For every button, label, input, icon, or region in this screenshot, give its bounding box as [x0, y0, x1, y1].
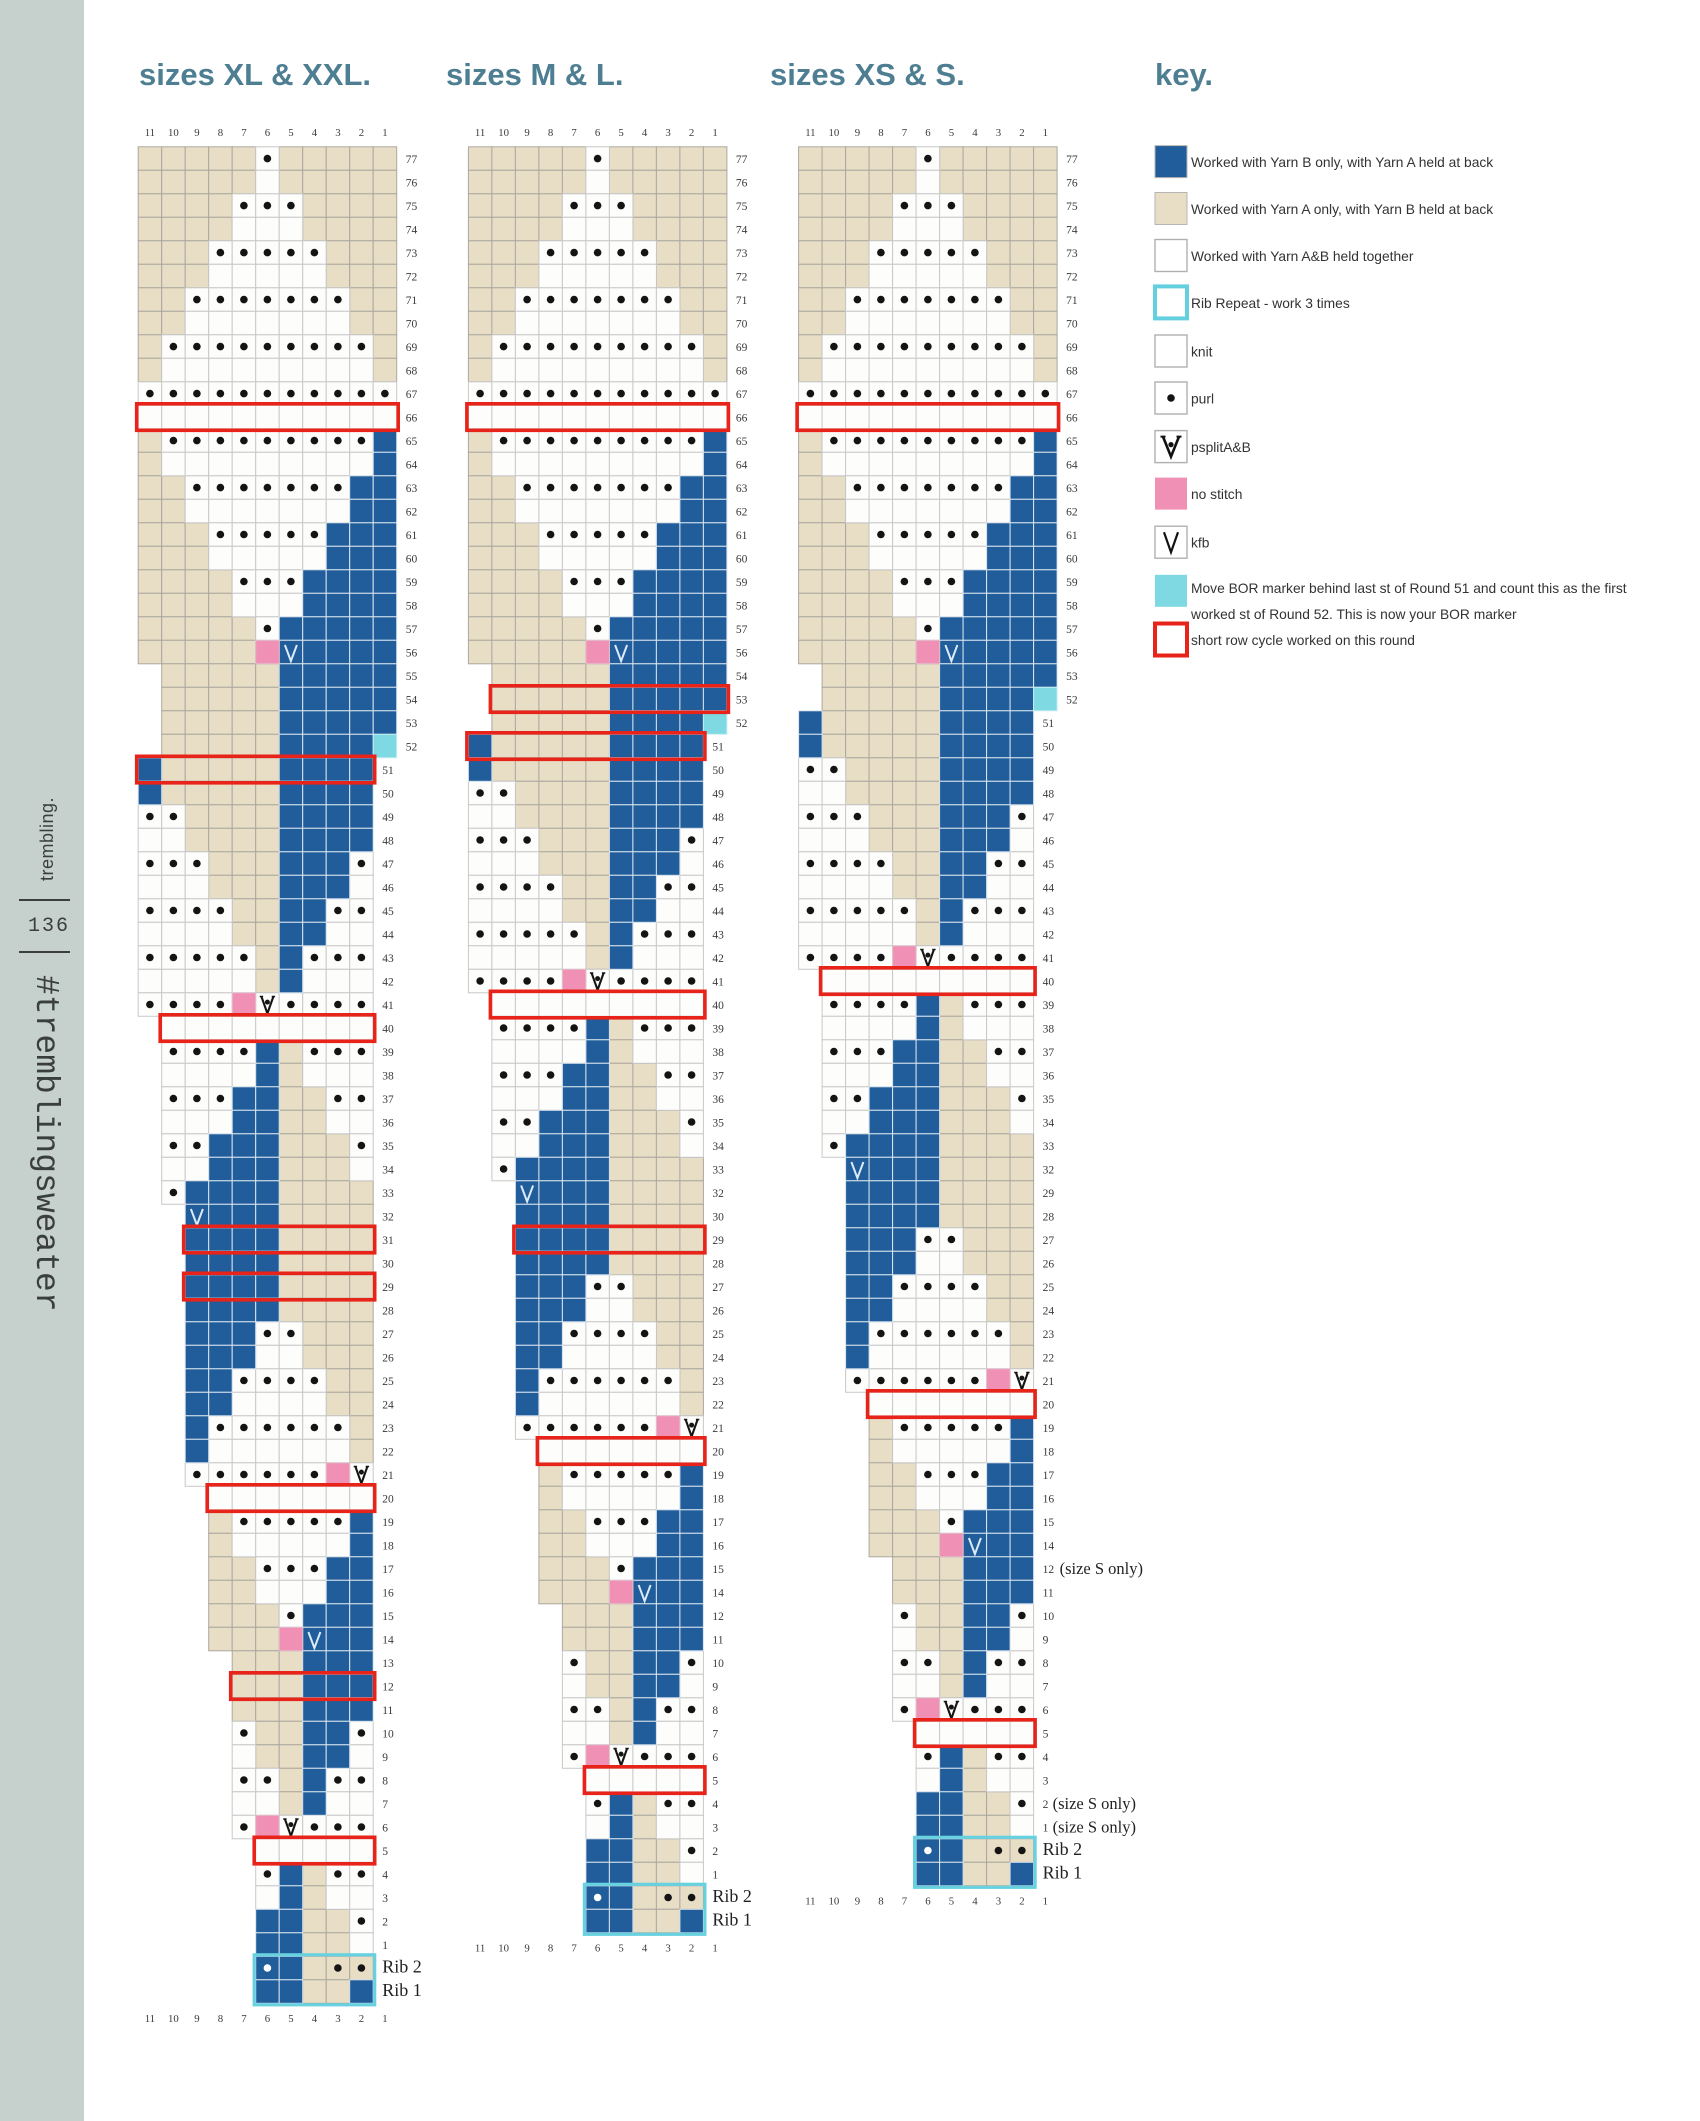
svg-text:44: 44 [1043, 883, 1055, 895]
svg-text:38: 38 [382, 1071, 394, 1083]
svg-text:44: 44 [712, 906, 724, 918]
svg-text:8: 8 [382, 1776, 388, 1788]
svg-text:66: 66 [406, 413, 418, 425]
svg-text:56: 56 [1066, 648, 1078, 660]
svg-text:29: 29 [1043, 1188, 1055, 1200]
svg-text:73: 73 [1066, 248, 1078, 260]
svg-text:58: 58 [406, 601, 418, 613]
svg-text:65: 65 [1066, 436, 1078, 448]
svg-text:11: 11 [712, 1635, 723, 1647]
svg-text:8: 8 [712, 1705, 718, 1717]
svg-text:67: 67 [406, 389, 418, 401]
svg-text:46: 46 [712, 859, 724, 871]
svg-text:27: 27 [382, 1329, 394, 1341]
svg-text:48: 48 [712, 812, 724, 824]
svg-text:63: 63 [406, 483, 418, 495]
svg-text:2: 2 [689, 1942, 694, 1954]
svg-text:18: 18 [1043, 1447, 1055, 1459]
svg-text:3: 3 [1043, 1776, 1049, 1788]
svg-text:7: 7 [241, 2013, 247, 2025]
svg-text:67: 67 [1066, 389, 1078, 401]
svg-text:7: 7 [382, 1799, 388, 1811]
svg-text:Move BOR marker behind last st: Move BOR marker behind last st of Round … [1191, 581, 1627, 596]
svg-text:11: 11 [805, 127, 815, 139]
svg-text:74: 74 [406, 225, 418, 237]
svg-text:6: 6 [712, 1752, 718, 1764]
svg-text:7: 7 [241, 127, 247, 139]
svg-text:31: 31 [382, 1235, 394, 1247]
svg-text:47: 47 [382, 859, 394, 871]
svg-text:51: 51 [1043, 718, 1055, 730]
svg-text:19: 19 [1043, 1423, 1055, 1435]
svg-text:2: 2 [359, 2013, 364, 2025]
svg-text:40: 40 [1043, 977, 1055, 989]
svg-text:7: 7 [902, 1895, 908, 1907]
svg-text:7: 7 [902, 127, 908, 139]
svg-text:37: 37 [712, 1071, 724, 1083]
svg-text:Rib 1: Rib 1 [712, 1910, 752, 1930]
svg-text:62: 62 [736, 507, 748, 519]
svg-text:34: 34 [1043, 1118, 1055, 1130]
svg-text:15: 15 [1043, 1517, 1055, 1529]
svg-text:48: 48 [382, 836, 394, 848]
svg-text:26: 26 [712, 1306, 724, 1318]
svg-text:1: 1 [712, 1942, 717, 1954]
svg-text:4: 4 [1043, 1752, 1049, 1764]
svg-text:5: 5 [288, 127, 293, 139]
svg-text:39: 39 [712, 1024, 724, 1036]
svg-text:64: 64 [1066, 460, 1078, 472]
svg-text:36: 36 [382, 1118, 394, 1130]
svg-text:11: 11 [145, 127, 155, 139]
svg-text:44: 44 [382, 930, 394, 942]
svg-text:59: 59 [406, 577, 418, 589]
svg-text:9: 9 [712, 1682, 718, 1694]
svg-text:76: 76 [406, 178, 418, 190]
svg-text:24: 24 [712, 1353, 724, 1365]
svg-text:74: 74 [736, 225, 748, 237]
svg-text:4: 4 [382, 1870, 388, 1882]
svg-text:35: 35 [1043, 1094, 1055, 1106]
svg-text:18: 18 [382, 1541, 394, 1553]
svg-text:24: 24 [1043, 1306, 1055, 1318]
svg-text:9: 9 [1043, 1635, 1049, 1647]
svg-text:68: 68 [406, 366, 418, 378]
svg-text:15: 15 [712, 1564, 724, 1576]
svg-text:73: 73 [406, 248, 418, 260]
svg-text:10: 10 [168, 127, 179, 139]
svg-text:kfb: kfb [1191, 536, 1210, 551]
svg-text:72: 72 [1066, 272, 1078, 284]
svg-text:26: 26 [382, 1353, 394, 1365]
svg-text:21: 21 [382, 1470, 394, 1482]
svg-text:64: 64 [406, 460, 418, 472]
svg-text:76: 76 [1066, 178, 1078, 190]
svg-text:5: 5 [712, 1776, 718, 1788]
svg-text:(size S only): (size S only) [1060, 1559, 1143, 1578]
svg-text:48: 48 [1043, 789, 1055, 801]
svg-text:50: 50 [382, 789, 394, 801]
svg-text:4: 4 [712, 1799, 718, 1811]
svg-text:purl: purl [1191, 392, 1214, 407]
svg-text:43: 43 [712, 930, 724, 942]
svg-text:5: 5 [618, 127, 623, 139]
svg-text:6: 6 [925, 127, 931, 139]
svg-text:5: 5 [618, 1942, 623, 1954]
svg-text:38: 38 [712, 1047, 724, 1059]
svg-text:39: 39 [1043, 1000, 1055, 1012]
svg-text:60: 60 [406, 554, 418, 566]
svg-text:19: 19 [712, 1470, 724, 1482]
svg-text:9: 9 [855, 127, 860, 139]
svg-text:8: 8 [218, 2013, 223, 2025]
svg-text:71: 71 [736, 295, 748, 307]
svg-text:10: 10 [498, 127, 509, 139]
svg-text:11: 11 [475, 127, 485, 139]
svg-text:60: 60 [1066, 554, 1078, 566]
svg-text:4: 4 [642, 1942, 648, 1954]
svg-text:69: 69 [1066, 342, 1078, 354]
svg-text:30: 30 [712, 1212, 724, 1224]
svg-text:17: 17 [382, 1564, 394, 1576]
svg-text:10: 10 [712, 1658, 724, 1670]
svg-text:21: 21 [712, 1423, 724, 1435]
svg-text:Rib 1: Rib 1 [382, 1980, 422, 2000]
svg-text:20: 20 [712, 1447, 724, 1459]
svg-text:58: 58 [1066, 601, 1078, 613]
svg-text:14: 14 [1043, 1541, 1055, 1553]
svg-text:32: 32 [1043, 1165, 1055, 1177]
svg-text:59: 59 [1066, 577, 1078, 589]
svg-text:46: 46 [382, 883, 394, 895]
svg-text:1: 1 [1043, 1895, 1048, 1907]
svg-text:11: 11 [1043, 1588, 1054, 1600]
svg-text:54: 54 [406, 695, 418, 707]
svg-text:72: 72 [406, 272, 418, 284]
svg-text:10: 10 [1043, 1611, 1055, 1623]
svg-text:2: 2 [1043, 1799, 1049, 1811]
svg-text:3: 3 [382, 1893, 388, 1905]
svg-text:37: 37 [382, 1094, 394, 1106]
svg-text:17: 17 [712, 1517, 724, 1529]
svg-text:51: 51 [712, 742, 724, 754]
svg-text:41: 41 [712, 977, 724, 989]
svg-text:5: 5 [949, 127, 954, 139]
svg-text:25: 25 [712, 1329, 724, 1341]
svg-text:2: 2 [1019, 1895, 1024, 1907]
svg-text:33: 33 [382, 1188, 394, 1200]
svg-text:16: 16 [712, 1541, 724, 1553]
svg-text:6: 6 [265, 2013, 271, 2025]
svg-text:68: 68 [736, 366, 748, 378]
svg-text:8: 8 [878, 1895, 883, 1907]
svg-text:3: 3 [665, 127, 670, 139]
svg-text:37: 37 [1043, 1047, 1055, 1059]
svg-text:33: 33 [1043, 1141, 1055, 1153]
svg-text:8: 8 [548, 127, 553, 139]
svg-text:69: 69 [736, 342, 748, 354]
svg-text:7: 7 [571, 1942, 577, 1954]
svg-text:Worked with Yarn A only, with: Worked with Yarn A only, with Yarn B hel… [1191, 202, 1493, 217]
svg-text:45: 45 [1043, 859, 1055, 871]
svg-text:3: 3 [335, 2013, 340, 2025]
svg-text:27: 27 [712, 1282, 724, 1294]
svg-text:3: 3 [996, 127, 1001, 139]
svg-text:5: 5 [1043, 1729, 1049, 1741]
svg-text:77: 77 [736, 154, 748, 166]
svg-text:71: 71 [1066, 295, 1078, 307]
svg-text:69: 69 [406, 342, 418, 354]
svg-text:52: 52 [1066, 695, 1078, 707]
svg-text:67: 67 [736, 389, 748, 401]
svg-text:8: 8 [548, 1942, 553, 1954]
svg-text:worked st of Round 52. This is: worked st of Round 52. This is now your … [1190, 607, 1517, 622]
svg-text:66: 66 [1066, 413, 1078, 425]
svg-text:50: 50 [1043, 742, 1055, 754]
svg-text:11: 11 [145, 2013, 155, 2025]
svg-text:7: 7 [1043, 1682, 1049, 1694]
svg-text:20: 20 [1043, 1400, 1055, 1412]
svg-text:36: 36 [1043, 1071, 1055, 1083]
svg-text:41: 41 [1043, 953, 1055, 965]
svg-text:70: 70 [1066, 319, 1078, 331]
svg-text:15: 15 [382, 1611, 394, 1623]
svg-text:10: 10 [829, 1895, 840, 1907]
svg-text:50: 50 [712, 765, 724, 777]
svg-text:66: 66 [736, 413, 748, 425]
svg-text:60: 60 [736, 554, 748, 566]
svg-text:75: 75 [406, 201, 418, 213]
svg-text:70: 70 [736, 319, 748, 331]
svg-text:57: 57 [1066, 624, 1078, 636]
svg-text:Rib 2: Rib 2 [1043, 1839, 1083, 1859]
svg-text:3: 3 [996, 1895, 1001, 1907]
svg-text:45: 45 [382, 906, 394, 918]
svg-text:psplitA&B: psplitA&B [1191, 440, 1251, 455]
svg-text:20: 20 [382, 1494, 394, 1506]
svg-text:51: 51 [382, 765, 394, 777]
svg-text:Rib 2: Rib 2 [712, 1886, 752, 1906]
svg-text:1: 1 [382, 127, 387, 139]
svg-text:36: 36 [712, 1094, 724, 1106]
svg-text:52: 52 [406, 742, 418, 754]
svg-text:25: 25 [382, 1376, 394, 1388]
svg-text:49: 49 [712, 789, 724, 801]
svg-text:75: 75 [736, 201, 748, 213]
svg-text:26: 26 [1043, 1259, 1055, 1271]
svg-text:49: 49 [1043, 765, 1055, 777]
svg-text:6: 6 [265, 127, 271, 139]
svg-text:74: 74 [1066, 225, 1078, 237]
svg-text:9: 9 [855, 1895, 860, 1907]
svg-text:6: 6 [1043, 1705, 1049, 1717]
svg-text:2: 2 [359, 127, 364, 139]
svg-text:16: 16 [382, 1588, 394, 1600]
svg-text:28: 28 [382, 1306, 394, 1318]
svg-text:41: 41 [382, 1000, 394, 1012]
svg-text:21: 21 [1043, 1376, 1055, 1388]
svg-text:3: 3 [665, 1942, 670, 1954]
svg-text:23: 23 [382, 1423, 394, 1435]
svg-text:42: 42 [1043, 930, 1055, 942]
svg-text:10: 10 [498, 1942, 509, 1954]
svg-text:2: 2 [712, 1846, 718, 1858]
svg-text:73: 73 [736, 248, 748, 260]
svg-text:23: 23 [712, 1376, 724, 1388]
svg-text:3: 3 [712, 1823, 718, 1835]
svg-text:29: 29 [712, 1235, 724, 1247]
svg-text:Rib 2: Rib 2 [382, 1957, 422, 1977]
svg-text:4: 4 [312, 127, 318, 139]
svg-text:6: 6 [925, 1895, 931, 1907]
svg-text:42: 42 [712, 953, 724, 965]
svg-text:62: 62 [406, 507, 418, 519]
svg-text:8: 8 [1043, 1658, 1049, 1670]
svg-text:35: 35 [712, 1118, 724, 1130]
svg-text:61: 61 [1066, 530, 1078, 542]
svg-text:9: 9 [524, 127, 529, 139]
svg-text:1: 1 [1043, 1823, 1049, 1835]
svg-text:35: 35 [382, 1141, 394, 1153]
svg-text:75: 75 [1066, 201, 1078, 213]
svg-text:(size S only): (size S only) [1053, 1818, 1136, 1837]
svg-text:61: 61 [736, 530, 748, 542]
svg-text:11: 11 [475, 1942, 485, 1954]
svg-text:11: 11 [805, 1895, 815, 1907]
svg-text:29: 29 [382, 1282, 394, 1294]
svg-text:5: 5 [288, 2013, 293, 2025]
svg-text:11: 11 [382, 1705, 393, 1717]
svg-text:2: 2 [1019, 127, 1024, 139]
svg-text:76: 76 [736, 178, 748, 190]
svg-text:45: 45 [712, 883, 724, 895]
svg-text:47: 47 [712, 836, 724, 848]
svg-text:57: 57 [406, 624, 418, 636]
svg-text:65: 65 [736, 436, 748, 448]
svg-text:24: 24 [382, 1400, 394, 1412]
svg-text:22: 22 [1043, 1353, 1055, 1365]
svg-text:52: 52 [736, 718, 748, 730]
svg-text:55: 55 [406, 671, 418, 683]
svg-text:43: 43 [1043, 906, 1055, 918]
svg-text:12: 12 [382, 1682, 394, 1694]
svg-text:19: 19 [382, 1517, 394, 1529]
svg-text:22: 22 [712, 1400, 724, 1412]
svg-text:9: 9 [194, 2013, 199, 2025]
svg-text:1: 1 [712, 1870, 718, 1882]
svg-text:Worked with Yarn B only, with: Worked with Yarn B only, with Yarn A hel… [1191, 155, 1493, 170]
svg-text:13: 13 [382, 1658, 394, 1670]
svg-text:53: 53 [406, 718, 418, 730]
svg-text:9: 9 [382, 1752, 388, 1764]
svg-text:57: 57 [736, 624, 748, 636]
svg-text:23: 23 [1043, 1329, 1055, 1341]
svg-text:59: 59 [736, 577, 748, 589]
svg-text:2: 2 [689, 127, 694, 139]
svg-text:34: 34 [712, 1141, 724, 1153]
svg-text:5: 5 [949, 1895, 954, 1907]
svg-text:6: 6 [595, 127, 601, 139]
svg-text:32: 32 [382, 1212, 394, 1224]
svg-text:46: 46 [1043, 836, 1055, 848]
svg-text:14: 14 [382, 1635, 394, 1647]
svg-text:12: 12 [712, 1611, 724, 1623]
svg-text:4: 4 [972, 1895, 978, 1907]
svg-text:22: 22 [382, 1447, 394, 1459]
svg-text:70: 70 [406, 319, 418, 331]
svg-text:knit: knit [1191, 345, 1213, 360]
svg-text:12: 12 [1043, 1564, 1055, 1576]
svg-text:32: 32 [712, 1188, 724, 1200]
svg-text:2: 2 [382, 1917, 388, 1929]
svg-text:49: 49 [382, 812, 394, 824]
svg-text:(size S only): (size S only) [1053, 1794, 1136, 1813]
svg-text:3: 3 [335, 127, 340, 139]
svg-text:8: 8 [218, 127, 223, 139]
svg-text:1: 1 [1043, 127, 1048, 139]
svg-text:4: 4 [642, 127, 648, 139]
svg-text:77: 77 [406, 154, 418, 166]
svg-text:30: 30 [382, 1259, 394, 1271]
svg-text:28: 28 [712, 1259, 724, 1271]
svg-text:7: 7 [571, 127, 577, 139]
svg-text:short row cycle worked on this: short row cycle worked on this round [1191, 633, 1415, 648]
svg-text:38: 38 [1043, 1024, 1055, 1036]
svg-text:10: 10 [382, 1729, 394, 1741]
svg-text:39: 39 [382, 1047, 394, 1059]
svg-text:33: 33 [712, 1165, 724, 1177]
svg-text:17: 17 [1043, 1470, 1055, 1482]
svg-text:6: 6 [382, 1823, 388, 1835]
svg-text:40: 40 [712, 1000, 724, 1012]
svg-text:53: 53 [736, 695, 748, 707]
svg-text:5: 5 [382, 1846, 388, 1858]
svg-text:14: 14 [712, 1588, 724, 1600]
svg-text:56: 56 [406, 648, 418, 660]
svg-text:65: 65 [406, 436, 418, 448]
svg-text:72: 72 [736, 272, 748, 284]
svg-text:Worked with Yarn A&B held toge: Worked with Yarn A&B held together [1191, 249, 1414, 264]
svg-text:6: 6 [595, 1942, 601, 1954]
svg-text:4: 4 [972, 127, 978, 139]
svg-text:54: 54 [736, 671, 748, 683]
svg-text:1: 1 [382, 2013, 387, 2025]
svg-text:18: 18 [712, 1494, 724, 1506]
svg-text:40: 40 [382, 1024, 394, 1036]
svg-text:63: 63 [1066, 483, 1078, 495]
svg-text:71: 71 [406, 295, 418, 307]
svg-text:56: 56 [736, 648, 748, 660]
svg-text:64: 64 [736, 460, 748, 472]
svg-text:9: 9 [194, 127, 199, 139]
svg-text:1: 1 [382, 1940, 388, 1952]
svg-text:25: 25 [1043, 1282, 1055, 1294]
svg-text:4: 4 [312, 2013, 318, 2025]
svg-text:62: 62 [1066, 507, 1078, 519]
svg-text:34: 34 [382, 1165, 394, 1177]
svg-text:68: 68 [1066, 366, 1078, 378]
svg-text:16: 16 [1043, 1494, 1055, 1506]
svg-text:53: 53 [1066, 671, 1078, 683]
svg-text:9: 9 [524, 1942, 529, 1954]
svg-text:63: 63 [736, 483, 748, 495]
svg-text:Rib Repeat - work 3 times: Rib Repeat - work 3 times [1191, 296, 1350, 311]
svg-text:61: 61 [406, 530, 418, 542]
svg-text:10: 10 [829, 127, 840, 139]
svg-text:47: 47 [1043, 812, 1055, 824]
svg-text:7: 7 [712, 1729, 718, 1741]
svg-text:8: 8 [878, 127, 883, 139]
